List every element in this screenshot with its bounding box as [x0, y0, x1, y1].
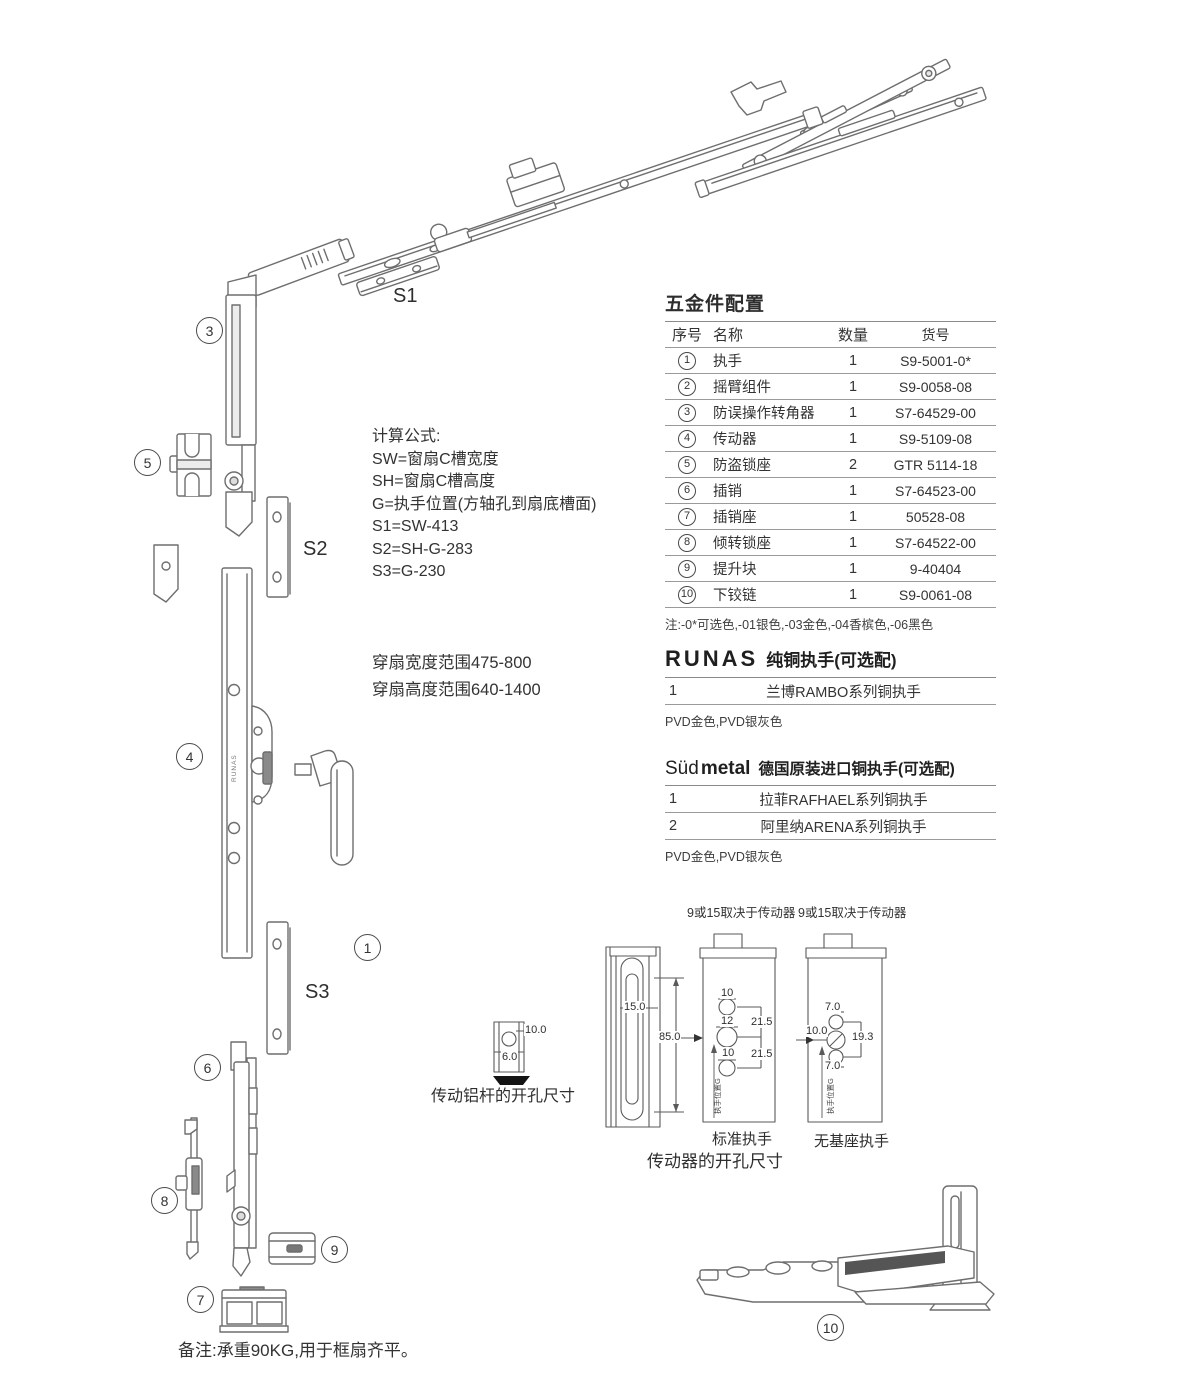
part-6-bolt-drawing [227, 1042, 257, 1276]
part-8-tilt-lock-drawing [176, 1118, 202, 1259]
exploded-parts-drawing [0, 0, 1200, 1400]
row-number-badge: 7 [678, 508, 696, 526]
part-9-lift-block-drawing [269, 1233, 315, 1264]
s2-plate-drawing [267, 497, 290, 597]
part-7-bolt-keeper-drawing [220, 1287, 288, 1332]
row-number-badge: 1 [678, 352, 696, 370]
sash-width-range: 穿扇宽度范围475-800 [372, 650, 541, 677]
table-row: 5 防盗锁座 2 GTR 5114-18 [665, 452, 996, 478]
part-4-drive-bar-drawing [222, 568, 272, 958]
part-5-keeper-drawing [170, 434, 211, 496]
part-label-3: 3 [196, 317, 223, 344]
std-pitch-bottom-dim: 21.5 [750, 1048, 773, 1060]
driller-profile-drawing [606, 947, 703, 1127]
part-label-7: 7 [187, 1286, 214, 1313]
table-row: 1 执手 1 S9-5001-0* [665, 348, 996, 374]
drive-bar-brand-text: RUNAS [231, 754, 238, 782]
row-number-badge: 6 [678, 482, 696, 500]
runas-brand: RUNAS [665, 646, 758, 672]
nobase-bottom-dim: 7.0 [824, 1060, 841, 1072]
nobase-top-dim: 7.0 [824, 1001, 841, 1013]
formula-title: 计算公式: [372, 426, 596, 449]
part-2-scissor-stay-drawing [337, 53, 987, 287]
nobase-right-dim: 19.3 [851, 1031, 874, 1043]
profile-slot-height-dim: 85.0 [658, 1031, 681, 1043]
col-header-qty: 数量 [831, 324, 875, 345]
part-label-9: 9 [321, 1236, 348, 1263]
sudmetal-finish-note: PVD金色,PVD银灰色 [665, 840, 996, 865]
table-row: 9 提升块 1 9-40404 [665, 556, 996, 582]
sash-range-block: 穿扇宽度范围475-800 穿扇高度范围640-1400 [372, 650, 541, 704]
col-header-name: 名称 [709, 324, 831, 345]
row-number-badge: 3 [678, 404, 696, 422]
part-label-6: 6 [194, 1054, 221, 1081]
part-10-bottom-hinge-drawing [697, 1186, 994, 1310]
nobase-handle-pos-text: 执手位置G [825, 1078, 836, 1114]
part-label-10: 10 [817, 1314, 844, 1341]
col-header-code: 货号 [875, 325, 996, 345]
part-label-5: 5 [134, 449, 161, 476]
std-handle-pos-text: 执手位置G [712, 1078, 723, 1114]
row-number-badge: 2 [678, 378, 696, 396]
standard-handle-label: 标准执手 [712, 1128, 772, 1149]
hardware-config-table: 五金件配置 序号 名称 数量 货号 1 执手 1 S9-5001-0* 2 摇臂… [665, 289, 996, 633]
punch-caption: 传动铝杆的开孔尺寸 [431, 1082, 575, 1106]
nobase-left-dim: 10.0 [805, 1025, 828, 1037]
formula-line: SH=窗扇C槽高度 [372, 471, 596, 494]
spec-sheet-page: 3 5 4 1 6 8 9 7 10 S1 S2 S3 RUNAS 五金件配置 … [0, 0, 1200, 1400]
part-label-8: 8 [151, 1187, 178, 1214]
footer-note: 备注:承重90KG,用于框扇齐平。 [178, 1336, 418, 1361]
formula-line: G=执手位置(方轴孔到扇底槽面) [372, 494, 596, 517]
hardware-table-header: 序号 名称 数量 货号 [665, 322, 996, 348]
sudmetal-optional-block: Süd metal 德国原装进口铜执手(可选配) 1 拉菲RAFHAEL系列铜执… [665, 757, 996, 865]
table-row: 3 防误操作转角器 1 S7-64529-00 [665, 400, 996, 426]
row-number-badge: 4 [678, 430, 696, 448]
col-header-no: 序号 [665, 324, 709, 345]
sash-height-range: 穿扇高度范围640-1400 [372, 677, 541, 704]
formula-line: S2=SH-G-283 [372, 539, 596, 562]
row-number-badge: 8 [678, 534, 696, 552]
row-number-badge: 5 [678, 456, 696, 474]
table-row: 2 摇臂组件 1 S9-0058-08 [665, 374, 996, 400]
sudmetal-brand-bold: metal [701, 758, 751, 780]
table-row: 8 倾转锁座 1 S7-64522-00 [665, 530, 996, 556]
table-row: 7 插销座 1 50528-08 [665, 504, 996, 530]
punch-dim-side: 6.0 [501, 1051, 518, 1063]
formula-line: S3=G-230 [372, 561, 596, 584]
driller-header-left: 9或15取决于传动器 [687, 902, 795, 921]
std-hole-bottom-dim: 10 [721, 1047, 735, 1059]
table-row: 6 插销 1 S7-64523-00 [665, 478, 996, 504]
std-hole-mid-dim: 12 [720, 1015, 734, 1027]
sudmetal-row: 1 拉菲RAFHAEL系列铜执手 [665, 786, 996, 813]
color-options-note: 注:-0*可选色,-01银色,-03金色,-04香槟色,-06黑色 [665, 608, 996, 633]
std-hole-top-dim: 10 [720, 987, 734, 999]
part-label-1: 1 [354, 934, 381, 961]
s2-label: S2 [303, 538, 327, 561]
sudmetal-brand-light: Süd [665, 758, 699, 780]
table-row: 4 传动器 1 S9-5109-08 [665, 426, 996, 452]
profile-slot-width-dim: 15.0 [623, 1001, 646, 1013]
s3-label: S3 [305, 981, 329, 1004]
s3-plate-drawing [267, 922, 290, 1054]
formula-line: S1=SW-413 [372, 516, 596, 539]
row-number-badge: 10 [678, 586, 696, 604]
part-1-handle-drawing [295, 751, 353, 866]
formula-line: SW=窗扇C槽宽度 [372, 449, 596, 472]
punch-dim-top: 10.0 [524, 1024, 547, 1036]
table-row: 10 下铰链 1 S9-0061-08 [665, 582, 996, 608]
runas-row: 1 兰博RAMBO系列铜执手 [665, 678, 996, 705]
formula-block: 计算公式: SW=窗扇C槽宽度 SH=窗扇C槽高度 G=执手位置(方轴孔到扇底槽… [372, 426, 596, 584]
sudmetal-row: 2 阿里纳ARENA系列铜执手 [665, 813, 996, 840]
driller-caption: 传动器的开孔尺寸 [647, 1147, 783, 1172]
driller-header-right: 9或15取决于传动器 [798, 902, 906, 921]
row-number-badge: 9 [678, 560, 696, 578]
hardware-table-title: 五金件配置 [665, 289, 996, 322]
runas-finish-note: PVD金色,PVD银灰色 [665, 705, 996, 730]
runas-optional-block: RUNAS 纯铜执手(可选配) 1 兰博RAMBO系列铜执手 PVD金色,PVD… [665, 646, 996, 730]
part-label-4: 4 [176, 743, 203, 770]
sudmetal-title: 德国原装进口铜执手(可选配) [758, 757, 954, 779]
std-pitch-top-dim: 21.5 [750, 1016, 773, 1028]
s1-label: S1 [393, 285, 417, 308]
runas-title: 纯铜执手(可选配) [766, 646, 896, 671]
no-base-handle-label: 无基座执手 [814, 1130, 889, 1151]
